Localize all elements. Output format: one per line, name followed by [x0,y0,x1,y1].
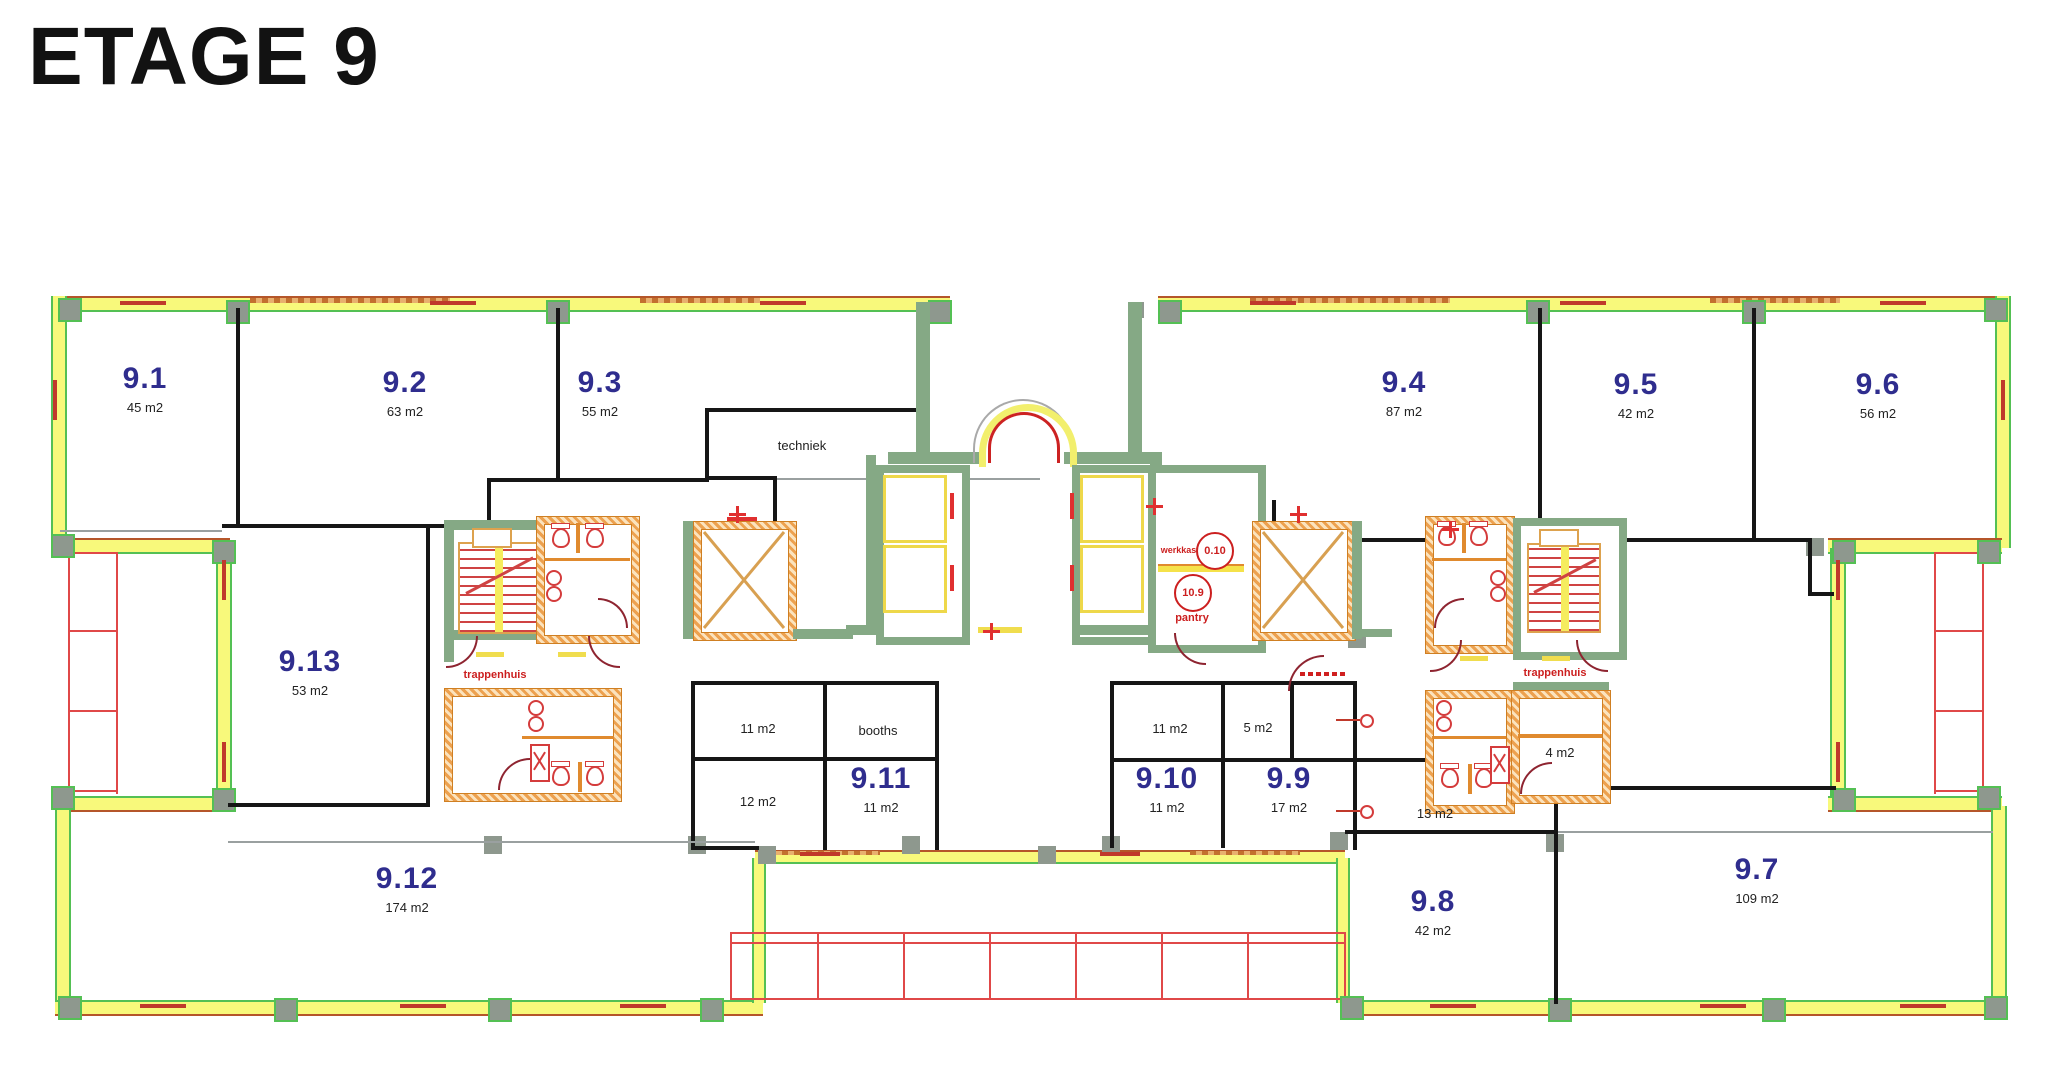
door-tick [727,517,757,521]
railing-rung [70,552,116,554]
column [1038,846,1056,864]
room-5m2-label: 5 m2 [1218,720,1298,735]
room-number: 9.10 [1112,762,1222,796]
room-area: 17 m2 [1234,800,1344,815]
wall [1808,592,1834,596]
exterior-wall-right-lower [1991,806,2007,1012]
column [1330,832,1348,850]
lobby-wall [866,455,876,635]
exterior-wall-right-upper [1995,296,2011,548]
lift-car [1080,475,1144,543]
exterior-wall-bottom-left [55,1000,763,1016]
techniek-wall-left [705,408,709,482]
radiator-mark [222,560,226,600]
wall-9-1-9-2 [236,308,240,528]
radiator-mark [1836,560,1840,600]
duct-icon [1490,746,1510,784]
duct-icon [530,744,550,782]
column [212,788,236,812]
room-11m2-label: 11 m2 [1130,721,1210,736]
room-12m2-label: 12 m2 [718,794,798,809]
lift-car [883,475,947,543]
radiator-mark [760,301,806,305]
radiator-mark [800,852,840,856]
elevator-x-icon [700,528,788,632]
door-leaf [1460,656,1488,661]
radiator-mark [1880,301,1926,305]
stall-divider [576,523,580,553]
thin-line [1558,831,1993,833]
staircase-right [1527,543,1601,633]
room-area: 174 m2 [347,900,467,915]
cluster2-right-wall [1353,681,1357,850]
stall-divider [1432,736,1506,739]
room-number: 9.4 [1344,366,1464,400]
radiator-mark [1836,742,1840,782]
radiator-mark [1430,1004,1476,1008]
room-number: 9.8 [1373,885,1493,919]
door-leaf [476,652,504,657]
sink-icon [1436,716,1452,732]
room-number: 9.2 [345,366,465,400]
pantry-label: pantry [1166,612,1218,624]
lift-door-tick [950,565,954,591]
room-number: 9.9 [1234,762,1344,796]
door-arrow-line [1336,719,1360,721]
atrium-wall-right [1128,302,1142,460]
room-label-9-11: 9.11 11 m2 [826,762,936,815]
wall [691,846,759,850]
door-leaf [558,652,586,657]
room-label-9-13: 9.13 53 m2 [250,645,370,698]
column [1977,540,2001,564]
radiator-mark [140,1004,186,1008]
radiator-mark [2001,380,2005,420]
room-11m2-label: 11 m2 [718,721,798,736]
railing-rung [70,790,116,792]
room-label-9-1: 9.1 45 m2 [85,362,205,415]
door-arc [588,636,620,668]
room-number: 9.12 [347,862,467,896]
room-label-9-2: 9.2 63 m2 [345,366,465,419]
stall-divider [1432,558,1506,561]
lift-door-tick [1070,493,1074,519]
lift-door-tick [950,493,954,519]
toilet-icon [552,766,570,786]
elevator-x-icon [1259,528,1347,632]
room-area: 11 m2 [1112,800,1222,815]
wall-hatch [1710,298,1840,303]
column [1984,996,2008,1020]
wall [1513,682,1609,690]
toilet-icon [586,528,604,548]
room-code-circle: 10.9 [1174,574,1212,612]
lift-car [883,545,947,613]
cross-mark [1146,498,1163,515]
radiator-mark [1250,301,1296,305]
column [274,998,298,1022]
door-arc [1174,633,1206,665]
wall-9-5-9-6 [1752,308,1756,540]
exterior-wall-bottom-right [1342,1000,2008,1016]
railing-rung [1936,710,1982,712]
column [1158,300,1182,324]
railing-post [1075,934,1077,998]
railing-post [1161,934,1163,998]
toilet-icon [552,528,570,548]
room-area: 53 m2 [250,683,370,698]
radiator-mark [222,742,226,782]
radiator-mark [1560,301,1606,305]
atrium-wall-bottom-left [888,452,984,464]
railing-rung [70,630,116,632]
terrace-railing [730,932,1346,1000]
room-number: 9.11 [826,762,936,796]
railing-post [989,934,991,998]
room-area: 42 m2 [1576,406,1696,421]
room-label-9-5: 9.5 42 m2 [1576,368,1696,421]
column [902,836,920,854]
exterior-wall-top-left [55,296,950,312]
radiator-mark [1700,1004,1746,1008]
wall [1808,538,1812,596]
floor-plan: werkkast 0.10 10.9 pantry [0,0,2048,1069]
wall-hatch [1190,851,1300,855]
exterior-wall-left-upper [51,296,67,548]
shelf [1518,734,1602,738]
radiator-mark [430,301,476,305]
floorplan-page: ETAGE 9 [0,0,2048,1069]
door-leaf [1542,656,1570,661]
stall-divider [578,762,582,792]
room-label-9-12: 9.12 174 m2 [347,862,467,915]
wall [487,478,709,482]
balcony-railing-left [68,552,118,794]
stall-divider [1462,523,1466,553]
thin-line [60,530,222,532]
railing-rail [732,942,1344,944]
radiator-mark [1900,1004,1946,1008]
room-label-9-8: 9.8 42 m2 [1373,885,1493,938]
radiator-mark [400,1004,446,1008]
room-label-9-10: 9.10 11 m2 [1112,762,1222,815]
room-area: 11 m2 [826,800,936,815]
cluster-left-wall [691,681,695,850]
stair-rail [495,544,503,632]
wall-hatch [250,298,450,303]
shaft-wall [1352,521,1362,639]
column [484,836,502,854]
room-number: 9.3 [540,366,660,400]
room-area: 56 m2 [1818,406,1938,421]
sink-icon [546,570,562,586]
trappenhuis-left-label: trappenhuis [445,669,545,681]
door-arc [446,636,478,668]
column [1977,786,2001,810]
lift-car [1080,545,1144,613]
room-number: 9.1 [85,362,205,396]
sink-icon [1490,586,1506,602]
room-number: 9.13 [250,645,370,679]
door-arrow-knob [1360,805,1374,819]
toilet-icon [1470,526,1488,546]
railing-rung [1936,552,1982,554]
exterior-wall-left-lower [55,806,71,1012]
railing-rung [1936,630,1982,632]
room-label-9-9: 9.9 17 m2 [1234,762,1344,815]
room-number: 9.6 [1818,368,1938,402]
room-area: 45 m2 [85,400,205,415]
room-4m2-label: 4 m2 [1518,745,1602,760]
wall-9-13-bottom [228,803,430,807]
balcony-left-bottom-wall [56,796,230,812]
stall-divider [1468,764,1472,794]
column [758,846,776,864]
toilet-icon [586,766,604,786]
room13-bottom-wall [1345,830,1558,834]
radiator-mark [1100,852,1140,856]
sink-icon [546,586,562,602]
techniek-wall-top [705,408,921,412]
room-13m2-label: 13 m2 [1395,806,1475,821]
trappenhuis-right-label: trappenhuis [1505,667,1605,679]
shaft-wall [683,521,693,639]
door-annotation-mark [1300,672,1348,676]
booths-label: booths [838,723,918,738]
railing-post [903,934,905,998]
cross-mark [1442,521,1459,538]
room-area: 109 m2 [1697,891,1817,906]
shelf [1158,564,1244,572]
door-arc [1430,640,1462,672]
column [488,998,512,1022]
thin-line [228,841,755,843]
stair-rail [1561,545,1569,631]
room-area: 63 m2 [345,404,465,419]
room-number: 9.5 [1576,368,1696,402]
stair-landing [1539,529,1579,547]
column [1340,996,1364,1020]
radiator-mark [120,301,166,305]
wall [793,629,853,639]
room-label-9-7: 9.7 109 m2 [1697,853,1817,906]
door-arrow-knob [1360,714,1374,728]
railing-rung [70,710,116,712]
cross-mark [1290,506,1307,523]
cluster-mid-wall [691,757,939,761]
sink-icon [528,700,544,716]
staircase-left [458,542,538,634]
room-number: 9.7 [1697,853,1817,887]
lift-door-tick [1070,565,1074,591]
column [1832,788,1856,812]
column [51,786,75,810]
column [1548,998,1572,1022]
column [1984,298,2008,322]
sink-icon [1436,700,1452,716]
stall-divider [522,736,614,739]
wall [705,476,777,480]
column [58,298,82,322]
sink-icon [1490,570,1506,586]
balcony-railing-right [1934,552,1984,794]
column [1762,998,1786,1022]
atrium-wall-bottom-right [1064,452,1162,464]
room-label-9-3: 9.3 55 m2 [540,366,660,419]
column [51,534,75,558]
room-area: 42 m2 [1373,923,1493,938]
sink-icon [528,716,544,732]
room-area: 87 m2 [1344,404,1464,419]
wall-hatch [640,298,760,303]
column [700,998,724,1022]
wall-9-13-right [426,526,430,807]
wall [773,476,777,526]
cluster-top-wall [691,681,939,685]
column [58,996,82,1020]
radiator-mark [620,1004,666,1008]
room-label-9-4: 9.4 87 m2 [1344,366,1464,419]
wall [1352,629,1392,637]
railing-rung [1936,790,1982,792]
room-code-circle: 0.10 [1196,532,1234,570]
techniek-label: techniek [762,438,842,453]
room-label-9-6: 9.6 56 m2 [1818,368,1938,421]
stall-divider [544,558,630,561]
wall-9-4-9-5 [1538,308,1542,540]
room-area: 55 m2 [540,404,660,419]
toilet-icon [1441,768,1459,788]
atrium-wall-left [916,302,930,460]
cross-mark [983,623,1000,640]
railing-post [1247,934,1249,998]
radiator-mark [53,380,57,420]
railing-post [817,934,819,998]
stair-landing [472,528,512,548]
